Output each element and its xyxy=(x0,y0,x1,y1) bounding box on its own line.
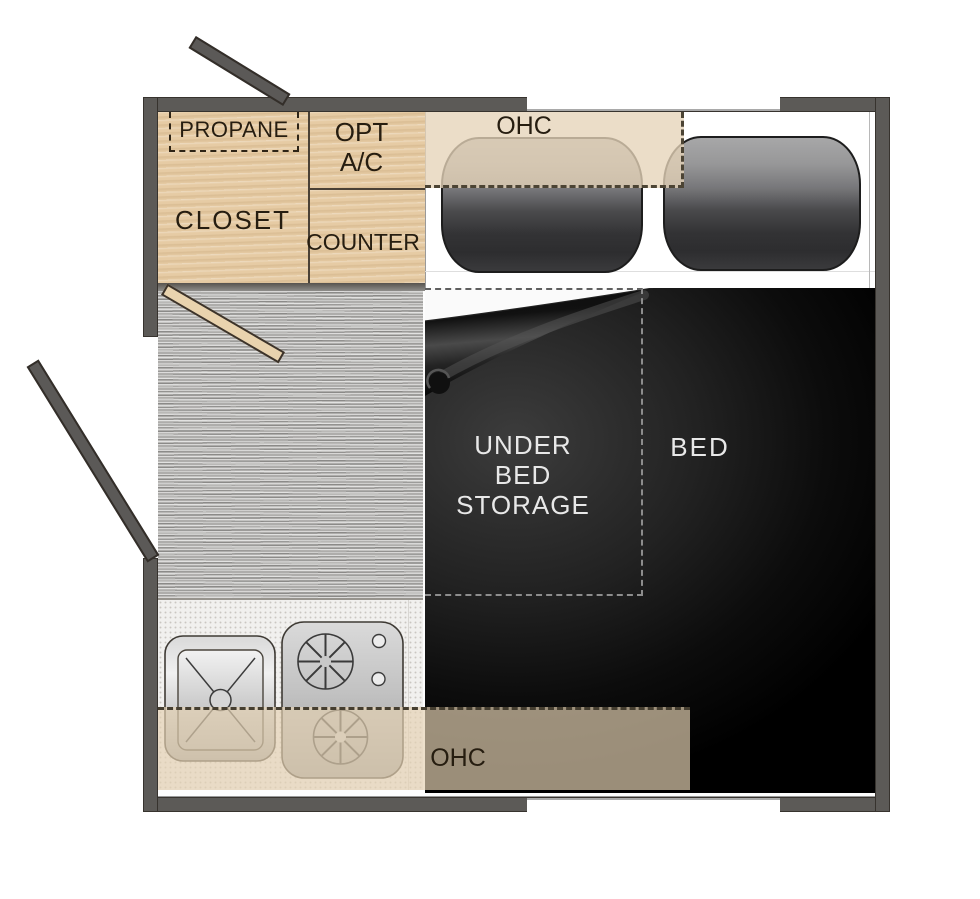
entry-door-swing-top xyxy=(189,36,291,106)
opt-ac-label-line2: A/C xyxy=(303,147,420,177)
cabinet-shadow xyxy=(158,283,425,291)
entry-door-swing-left xyxy=(27,359,160,562)
wall-right xyxy=(875,97,890,812)
stove-burner-rear xyxy=(298,634,353,689)
ohc-top-label: OHC xyxy=(493,112,555,141)
counter-label: COUNTER xyxy=(304,229,422,256)
bed-label: BED xyxy=(662,432,738,463)
stove-knob xyxy=(372,673,385,686)
under-bed-storage-label-line2: BED xyxy=(432,460,614,490)
overhead-cabinet-bottom xyxy=(158,707,690,790)
window-bottom xyxy=(527,798,780,812)
closet-label: CLOSET xyxy=(158,205,308,236)
ohc-bottom-label: OHC xyxy=(427,744,489,773)
under-bed-storage-label-line1: UNDER xyxy=(432,430,614,460)
window-top xyxy=(527,97,780,111)
propane-label: PROPANE xyxy=(169,117,299,143)
stove-knob xyxy=(373,635,386,648)
opt-ac-label-line1: OPT xyxy=(303,117,420,147)
bed-frame-edge xyxy=(869,112,870,288)
pillow-right xyxy=(663,136,861,271)
under-bed-storage-label-line3: STORAGE xyxy=(432,490,614,520)
wall-left-upper xyxy=(143,97,158,337)
under-bed-storage-label: UNDER BED STORAGE xyxy=(432,430,614,520)
wall-left-lower xyxy=(143,558,158,812)
opt-ac-label: OPT A/C xyxy=(303,117,420,177)
carpet-floor xyxy=(158,291,423,598)
